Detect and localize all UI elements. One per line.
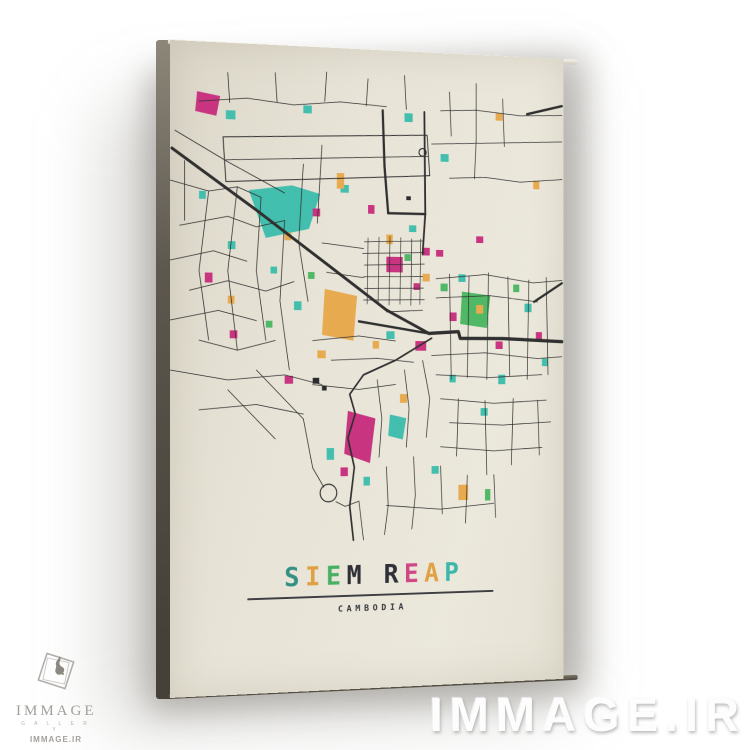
canvas-front: SIEMREAP CAMBODIA — [170, 40, 564, 698]
map-block — [341, 467, 348, 476]
map-road — [170, 370, 322, 385]
watermark-site-text: IMMAGE.IR — [430, 687, 746, 742]
map-block — [230, 330, 238, 338]
title-letter: E — [326, 563, 341, 590]
map-block — [533, 181, 539, 190]
map-road — [377, 380, 382, 458]
map-block — [405, 113, 413, 122]
poster-subtitle: CAMBODIA — [170, 597, 564, 621]
map-road — [423, 112, 426, 255]
map-road — [331, 358, 413, 362]
map-road — [364, 240, 422, 243]
map-block — [441, 284, 448, 292]
map-road — [449, 176, 561, 183]
map-block — [496, 113, 503, 121]
map-block — [364, 477, 370, 486]
map-block — [195, 91, 220, 116]
map-road — [386, 310, 422, 312]
map-road — [441, 446, 542, 452]
map-block — [308, 272, 315, 279]
map-road — [538, 400, 540, 455]
map-road — [388, 213, 425, 214]
map-roundabout — [320, 484, 337, 502]
map-road — [363, 251, 425, 254]
map-road — [303, 419, 323, 488]
map-block — [226, 110, 236, 119]
map-block — [303, 105, 311, 113]
map-road — [378, 237, 379, 304]
poster-title: SIEMREAP — [170, 556, 564, 595]
map-road — [223, 128, 430, 187]
map-road — [441, 466, 443, 514]
map-road — [385, 467, 389, 535]
map-block — [327, 448, 334, 460]
map-road — [170, 310, 256, 321]
map-road — [256, 370, 303, 419]
map-road — [359, 501, 364, 540]
map-road — [325, 72, 327, 101]
map-block — [388, 414, 406, 439]
map-road — [405, 370, 410, 447]
map-block — [386, 331, 394, 339]
map-road — [527, 105, 562, 116]
map-road — [405, 76, 407, 110]
map-road — [503, 99, 505, 147]
map-block — [476, 305, 483, 314]
map-road — [228, 390, 275, 440]
title-letter: A — [424, 560, 439, 586]
logo-subtitle: G A L L E R Y — [16, 721, 96, 733]
watermark-logo: IMMAGE G A L L E R Y IMMAGE.IR — [16, 644, 96, 744]
map-block — [458, 274, 465, 282]
map-block — [414, 283, 420, 290]
map-road — [534, 283, 562, 302]
map-road — [494, 475, 496, 518]
map-road — [313, 336, 396, 341]
map-block — [406, 196, 411, 200]
map-block — [496, 341, 503, 349]
map-road — [420, 239, 421, 304]
map-road — [511, 398, 513, 464]
map-block — [228, 241, 236, 249]
logo-site: IMMAGE.IR — [16, 735, 96, 744]
map-block — [205, 272, 213, 282]
map-block — [271, 267, 278, 274]
map-road — [299, 164, 308, 301]
map-road — [170, 250, 247, 261]
title-letter: R — [384, 561, 399, 588]
map-block — [476, 236, 483, 243]
map-road — [527, 280, 529, 379]
map-road — [449, 274, 451, 379]
map-road — [487, 273, 489, 380]
map-road — [366, 79, 368, 106]
poster-title-block: SIEMREAP CAMBODIA — [170, 556, 564, 621]
map-road — [432, 137, 562, 148]
map-block — [498, 375, 505, 385]
map-block — [373, 341, 379, 349]
map-road — [436, 274, 562, 283]
map-block — [485, 489, 490, 501]
map-road — [400, 238, 401, 305]
map-block — [322, 289, 357, 341]
map-road — [364, 276, 423, 278]
title-letter: S — [284, 564, 299, 591]
map-block — [400, 394, 407, 403]
map-block — [313, 208, 320, 216]
map-block — [436, 250, 443, 257]
map-road — [170, 180, 261, 197]
map-block — [386, 234, 392, 244]
map-block — [409, 225, 416, 232]
map-block — [542, 359, 548, 367]
title-letter: E — [404, 561, 419, 588]
map-block — [513, 285, 519, 293]
map-road — [322, 243, 364, 249]
map-block — [317, 350, 325, 358]
map-road — [449, 92, 451, 136]
map-road — [226, 150, 428, 166]
map-block — [405, 254, 411, 261]
map-block — [368, 205, 374, 214]
map-road — [389, 236, 390, 305]
map-block — [423, 274, 430, 282]
map-block — [432, 466, 439, 474]
map-road — [383, 110, 388, 213]
map-road — [508, 277, 510, 376]
map-road — [199, 96, 386, 108]
map-road — [199, 404, 303, 415]
map-road — [280, 220, 289, 370]
map-block — [481, 408, 488, 416]
map-road — [449, 422, 550, 426]
logo-brand: IMMAGE — [16, 703, 96, 720]
map-road — [336, 501, 359, 506]
map-road — [386, 503, 493, 510]
map-road — [412, 457, 416, 529]
map-block — [199, 191, 206, 199]
map-road — [411, 239, 412, 306]
canvas-left-side-edge — [156, 40, 171, 699]
map-road — [275, 73, 277, 103]
map-road — [474, 83, 476, 179]
title-letter: I — [305, 564, 320, 591]
logo-diamond-icon — [29, 644, 83, 698]
map-road — [199, 191, 209, 340]
map-road — [457, 399, 459, 456]
map-road — [228, 187, 238, 351]
map-road — [228, 73, 230, 103]
map-block — [294, 301, 301, 310]
map-block — [266, 321, 273, 328]
map-block — [441, 154, 449, 162]
map-svg — [170, 40, 564, 560]
map-block — [337, 173, 344, 189]
map-road — [467, 276, 469, 377]
title-letter: P — [444, 560, 459, 586]
map-road — [441, 398, 547, 403]
title-letter: M — [347, 562, 362, 589]
map-block — [536, 332, 542, 340]
map-road — [423, 360, 430, 437]
